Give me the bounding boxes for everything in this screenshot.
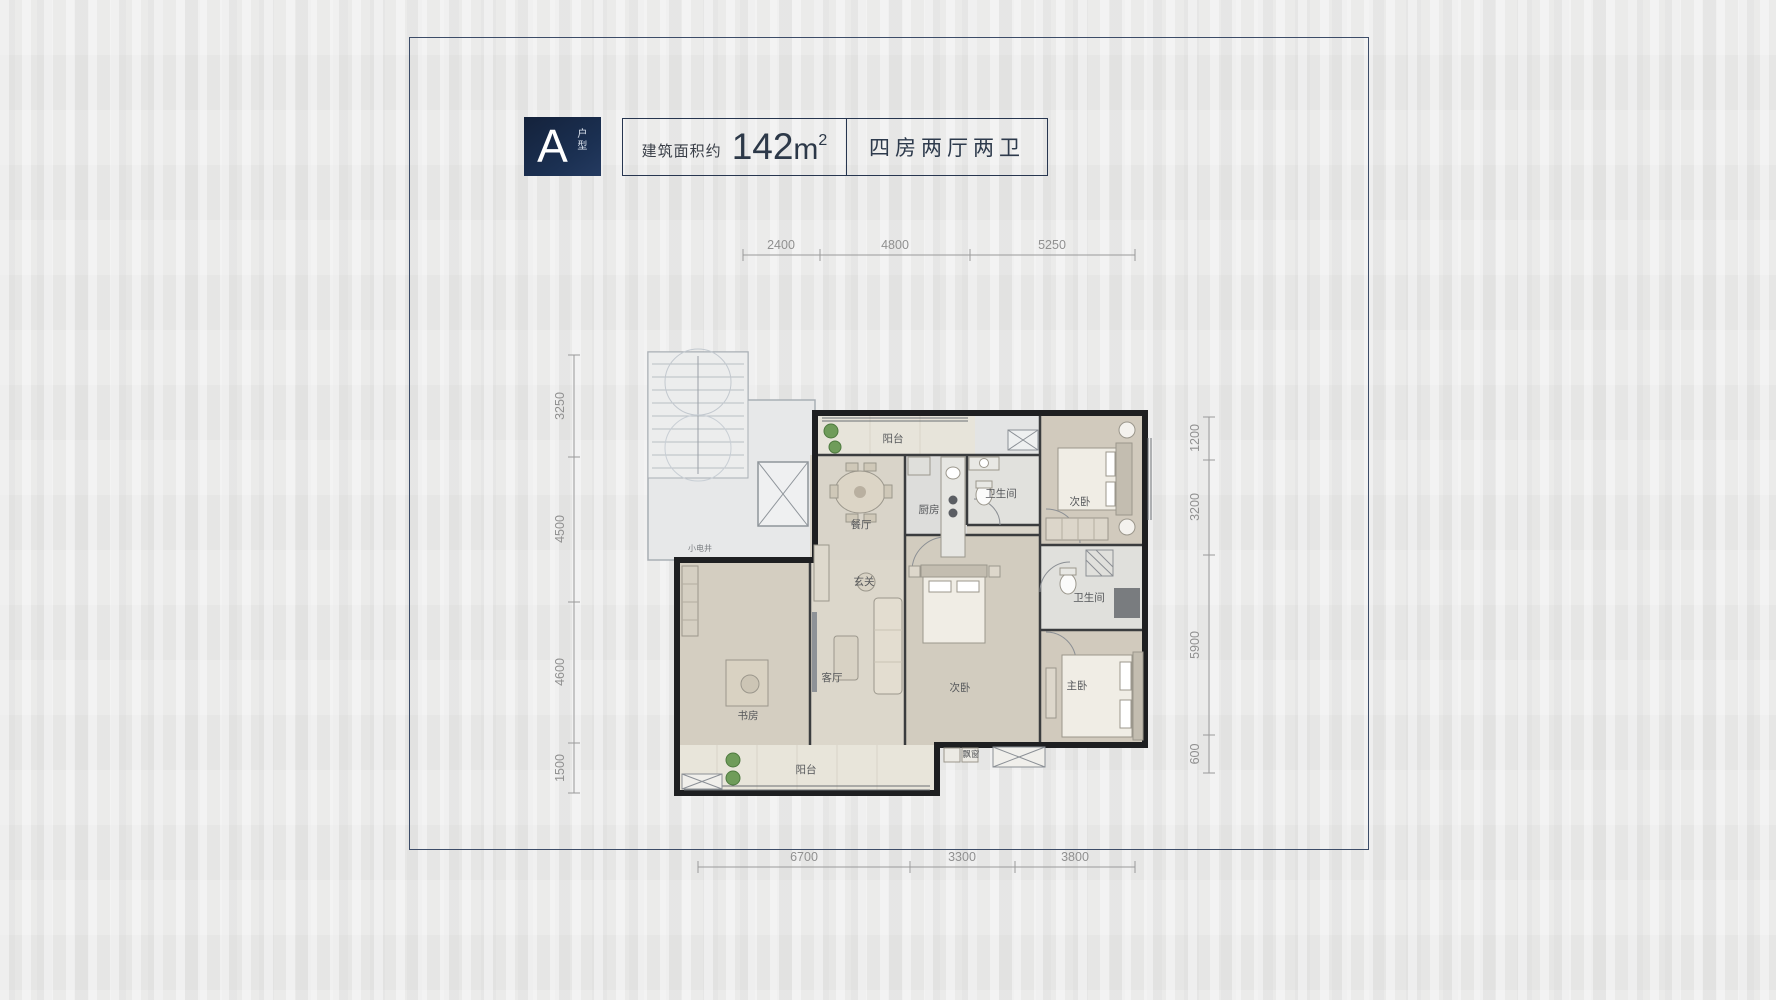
room-label-bath-main: 卫生间 [985, 487, 1017, 500]
dim-bottom-0: 6700 [790, 850, 818, 864]
dim-top-0: 2400 [767, 238, 795, 252]
dim-right-1: 3200 [1188, 493, 1202, 521]
room-label-foyer: 玄关 [854, 575, 875, 588]
bay-window-balcony [682, 774, 722, 789]
room-label-bedroom-mid: 次卧 [950, 681, 971, 694]
floor-plan: 小电井 [0, 0, 1776, 1000]
bay-window-equipment [1008, 430, 1038, 450]
dim-top-2: 5250 [1038, 238, 1066, 252]
bay-window-bottom [993, 747, 1045, 767]
dim-left-2: 4600 [553, 658, 567, 686]
room-label-shaft: 小电井 [688, 543, 712, 553]
room-label-living: 客厅 [822, 671, 843, 684]
room-label-balcony-top: 阳台 [883, 432, 904, 445]
room-label-kitchen: 厨房 [919, 503, 940, 516]
dim-bottom-2: 3800 [1061, 850, 1089, 864]
dim-left-0: 3250 [553, 392, 567, 420]
dim-left-1: 4500 [553, 515, 567, 543]
dim-right-2: 5900 [1188, 631, 1202, 659]
room-label-balcony-bottom: 阳台 [796, 763, 817, 776]
dim-right-0: 1200 [1188, 424, 1202, 452]
dim-bottom-1: 3300 [948, 850, 976, 864]
room-label-bay-window: 飘窗 [962, 749, 979, 759]
poster-canvas: A 户型 建筑面积约 142m2 四房两厅两卫 小 [0, 0, 1776, 1000]
dim-right-3: 600 [1188, 744, 1202, 765]
room-label-master: 主卧 [1067, 679, 1089, 692]
room-label-bedroom-top: 次卧 [1070, 495, 1092, 508]
room-label-dining: 餐厅 [851, 518, 872, 531]
elevator [758, 462, 808, 526]
room-label-bath-second: 卫生间 [1073, 591, 1105, 604]
room-label-study: 书房 [738, 709, 759, 722]
dim-left-3: 1500 [553, 754, 567, 782]
dim-top-1: 4800 [881, 238, 909, 252]
